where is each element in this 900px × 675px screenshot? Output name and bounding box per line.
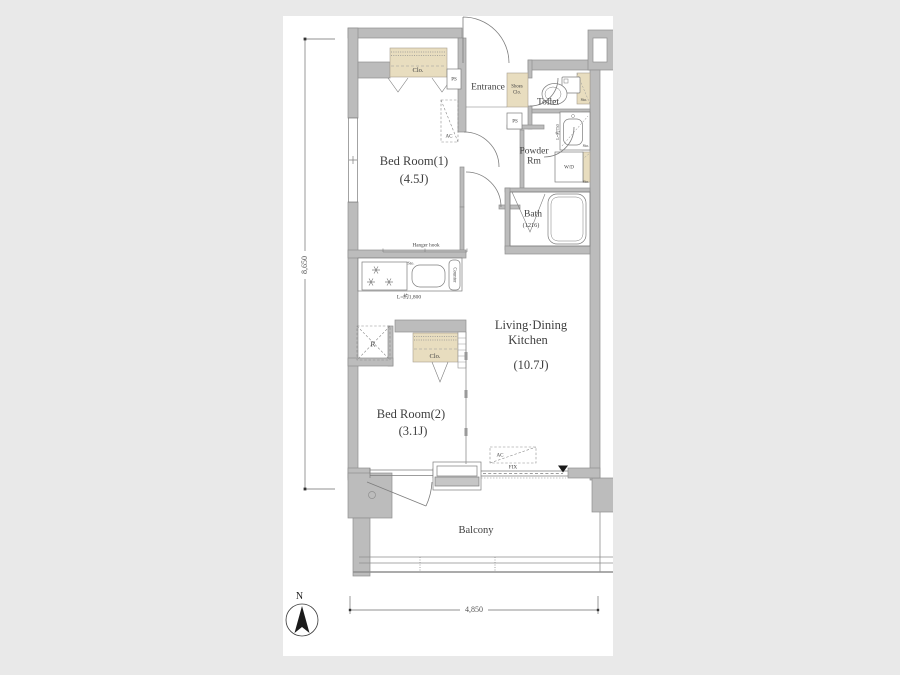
- entrance-label: Entrance: [471, 83, 505, 93]
- wall: [460, 167, 464, 207]
- north-label: N: [296, 592, 303, 602]
- storage-label-kitchen: Sto.: [407, 261, 414, 266]
- pipe-space-label-1: PS: [451, 76, 457, 81]
- vertical-dimension-line: [305, 39, 335, 489]
- bedroom1-window: [348, 118, 358, 202]
- bedroom1-closet-label: Clo.: [413, 67, 424, 73]
- wall: [348, 28, 358, 118]
- floorplan-page: { "page": { "background": "#e9e9e9", "ca…: [0, 0, 900, 675]
- sink: [412, 265, 445, 287]
- bath-label: Bath: [524, 210, 542, 220]
- wall: [505, 188, 590, 192]
- closet-door-fold: [388, 78, 452, 92]
- storage-label-wd: Sto.: [583, 180, 590, 184]
- bedroom2-closet-label: Clo.: [430, 353, 441, 359]
- fix-window-label: FIX: [508, 464, 518, 469]
- wall: [528, 60, 532, 78]
- wall: [592, 478, 613, 512]
- ldk-door: [466, 172, 501, 207]
- wall: [353, 518, 370, 576]
- wall: [395, 320, 466, 332]
- compass: [286, 604, 318, 636]
- wall: [348, 358, 393, 366]
- refrigerator-label: R: [370, 340, 375, 348]
- ldk-sliding-window: [481, 471, 568, 476]
- floorplan-drawing: [283, 16, 613, 656]
- closet-door-fold: [432, 362, 448, 382]
- storage-label-basin: Sto.: [583, 144, 590, 148]
- entrance-door: [463, 17, 509, 63]
- vertical-dimension-label: 8,650: [301, 251, 309, 279]
- windows: [348, 118, 568, 490]
- bedroom2-size: (3.1J): [399, 425, 428, 438]
- wall-niche: [593, 38, 607, 62]
- wall: [348, 202, 358, 480]
- wall: [358, 62, 390, 78]
- wall: [348, 28, 462, 38]
- wall: [348, 473, 392, 518]
- counter-label: Counter: [452, 267, 457, 282]
- wall: [505, 188, 510, 250]
- bath-size-label: (1216): [523, 222, 540, 228]
- balcony-railing: [359, 557, 613, 563]
- wall: [520, 130, 524, 188]
- washer-dryer-label: W/D: [564, 164, 574, 169]
- shoes-closet-label-line2: Clo.: [513, 90, 521, 95]
- horizontal-dimension-label: 4,850: [460, 606, 488, 614]
- floorplan-canvas: Bed Room(1) (4.5J) Bed Room(2) (3.1J) Li…: [283, 16, 613, 656]
- kitchen-length-label: L=約1,800: [397, 294, 421, 299]
- pipe-space-label-2: PS: [512, 118, 518, 123]
- wall: [568, 468, 600, 478]
- shoes-closet-label-line1: Shoes: [511, 84, 522, 89]
- storage-label-toilet: Sto.: [581, 98, 588, 102]
- toilet-label: Toilet: [537, 98, 559, 108]
- north-arrow-icon: [295, 606, 310, 633]
- wall: [348, 250, 466, 258]
- washbasin-length-label: L=約750: [556, 124, 560, 140]
- powder-room-label-line2: Rm: [527, 157, 541, 167]
- walls: [348, 28, 613, 576]
- ac-label-bedroom1: AC: [445, 133, 452, 138]
- ldk-name-line2: Kitchen: [508, 334, 548, 347]
- bedroom1-name: Bed Room(1): [380, 155, 448, 168]
- balcony-label: Balcony: [459, 526, 494, 537]
- entry-triangle-marker: [558, 466, 568, 473]
- ldk-name-line1: Living·Dining: [495, 319, 567, 332]
- bedroom1-size: (4.5J): [400, 173, 429, 186]
- stove: [362, 262, 407, 290]
- ldk-size: (10.7J): [513, 359, 548, 372]
- bathtub: [548, 194, 586, 244]
- window-frame-box: [433, 462, 481, 490]
- wall: [590, 70, 600, 480]
- wall: [460, 207, 464, 250]
- hanger-hook-label: Hanger hook: [412, 242, 439, 247]
- ac-label-ldk: AC: [496, 452, 503, 457]
- bedroom1-door: [464, 132, 499, 167]
- bath-room-outline: [510, 192, 590, 246]
- bedroom2-name: Bed Room(2): [377, 408, 445, 421]
- wall: [505, 246, 590, 254]
